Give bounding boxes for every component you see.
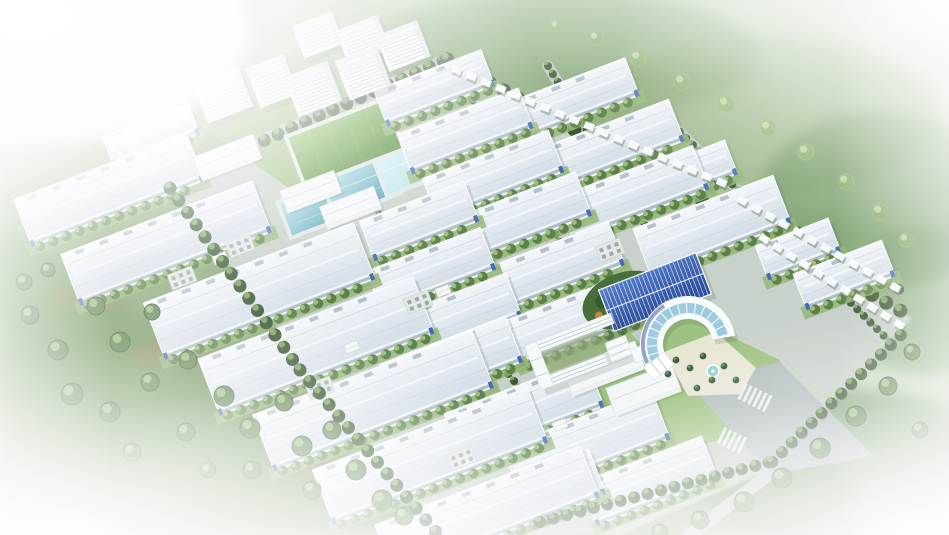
fog-wash — [0, 0, 949, 535]
aerial-rendering — [0, 0, 949, 535]
layer-fog — [0, 0, 949, 535]
scene-svg — [0, 0, 949, 535]
